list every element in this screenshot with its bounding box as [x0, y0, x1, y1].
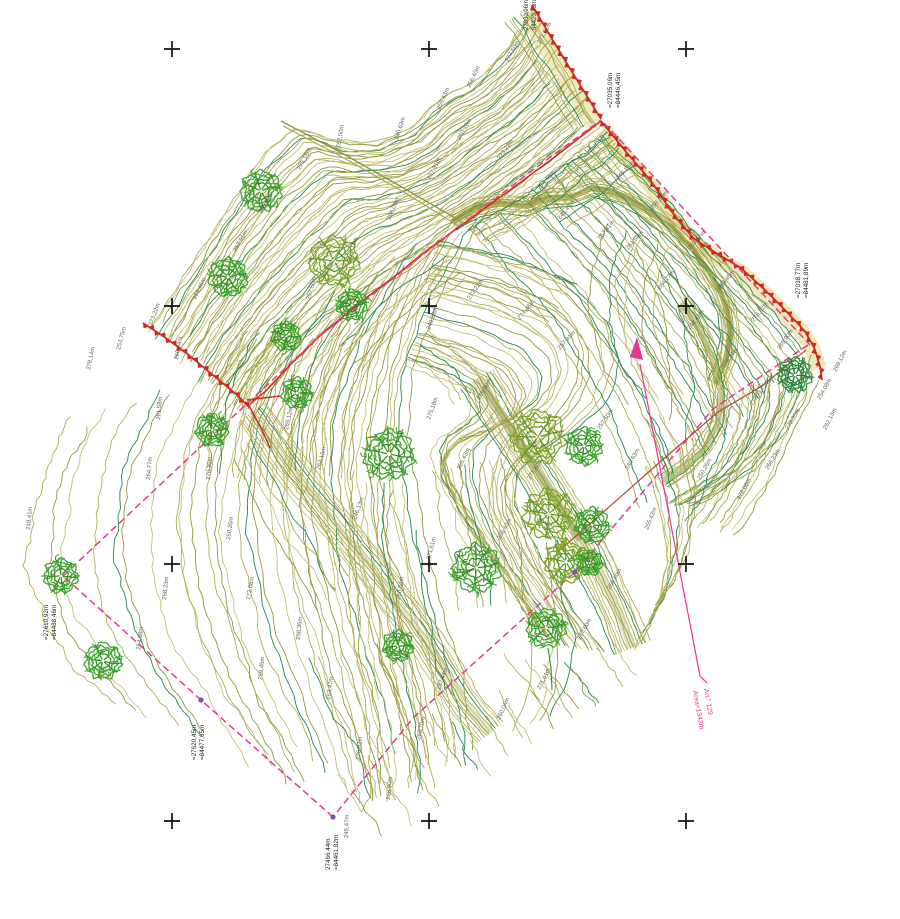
svg-text:=27620,45m: =27620,45m — [191, 725, 198, 760]
svg-text:=27610,92m: =27610,92m — [43, 605, 50, 640]
svg-text:=84488,46m: =84488,46m — [51, 605, 58, 640]
svg-text:253,75m: 253,75m — [116, 326, 128, 350]
svg-text:278,14m: 278,14m — [86, 346, 97, 370]
svg-text:254,08m: 254,08m — [817, 378, 834, 401]
svg-text:257,50m: 257,50m — [336, 124, 346, 148]
svg-text:27466,44m: 27466,44m — [325, 838, 332, 870]
svg-text:=27035,06m: =27035,06m — [607, 73, 614, 108]
svg-text:270,35m: 270,35m — [206, 456, 214, 480]
svg-text:264,77m: 264,77m — [146, 456, 154, 480]
svg-text:269,12m: 269,12m — [832, 349, 848, 372]
svg-text:268,23m: 268,23m — [162, 576, 170, 600]
svg-text:257,50m: 257,50m — [597, 409, 615, 432]
svg-text:Art.° 129: Art.° 129 — [702, 688, 715, 716]
svg-text:262,13m: 262,13m — [822, 407, 838, 430]
svg-text:255,43m: 255,43m — [644, 507, 658, 531]
svg-text:245,47m: 245,47m — [344, 815, 351, 839]
svg-text:261,58m: 261,58m — [156, 396, 164, 420]
svg-text:=84481,89m: =84481,89m — [803, 263, 810, 298]
svg-text:=84461,82m: =84461,82m — [333, 835, 340, 870]
svg-text:259,45m: 259,45m — [258, 656, 266, 680]
svg-text:=84477,65m: =84477,65m — [199, 725, 206, 760]
svg-text:Area=1343m: Area=1343m — [691, 690, 705, 730]
svg-text:272,08m: 272,08m — [246, 576, 256, 600]
svg-text:265,90m: 265,90m — [386, 776, 394, 800]
svg-text:=27038,77m: =27038,77m — [795, 263, 802, 298]
svg-text:260,04m: 260,04m — [174, 336, 184, 360]
svg-text:275,18m: 275,18m — [426, 397, 440, 421]
svg-text:250,26m: 250,26m — [226, 516, 235, 540]
svg-text:255,43m: 255,43m — [456, 447, 472, 471]
svg-text:=84446,45m: =84446,45m — [615, 73, 622, 108]
svg-text:240,63m: 240,63m — [625, 448, 642, 471]
svg-text:258,36m: 258,36m — [296, 616, 304, 640]
svg-text:276,52m: 276,52m — [751, 301, 770, 323]
svg-text:27030,96m: 27030,96m — [524, 0, 530, 30]
svg-text:260,04m: 260,04m — [496, 697, 511, 721]
svg-text:265,90m: 265,90m — [777, 329, 795, 352]
svg-text:275,18m: 275,18m — [297, 148, 314, 171]
svg-text:240,63m: 240,63m — [394, 117, 407, 141]
svg-text:264,77m: 264,77m — [657, 270, 677, 292]
svg-text:84420,73m: 84420,73m — [532, 0, 538, 30]
